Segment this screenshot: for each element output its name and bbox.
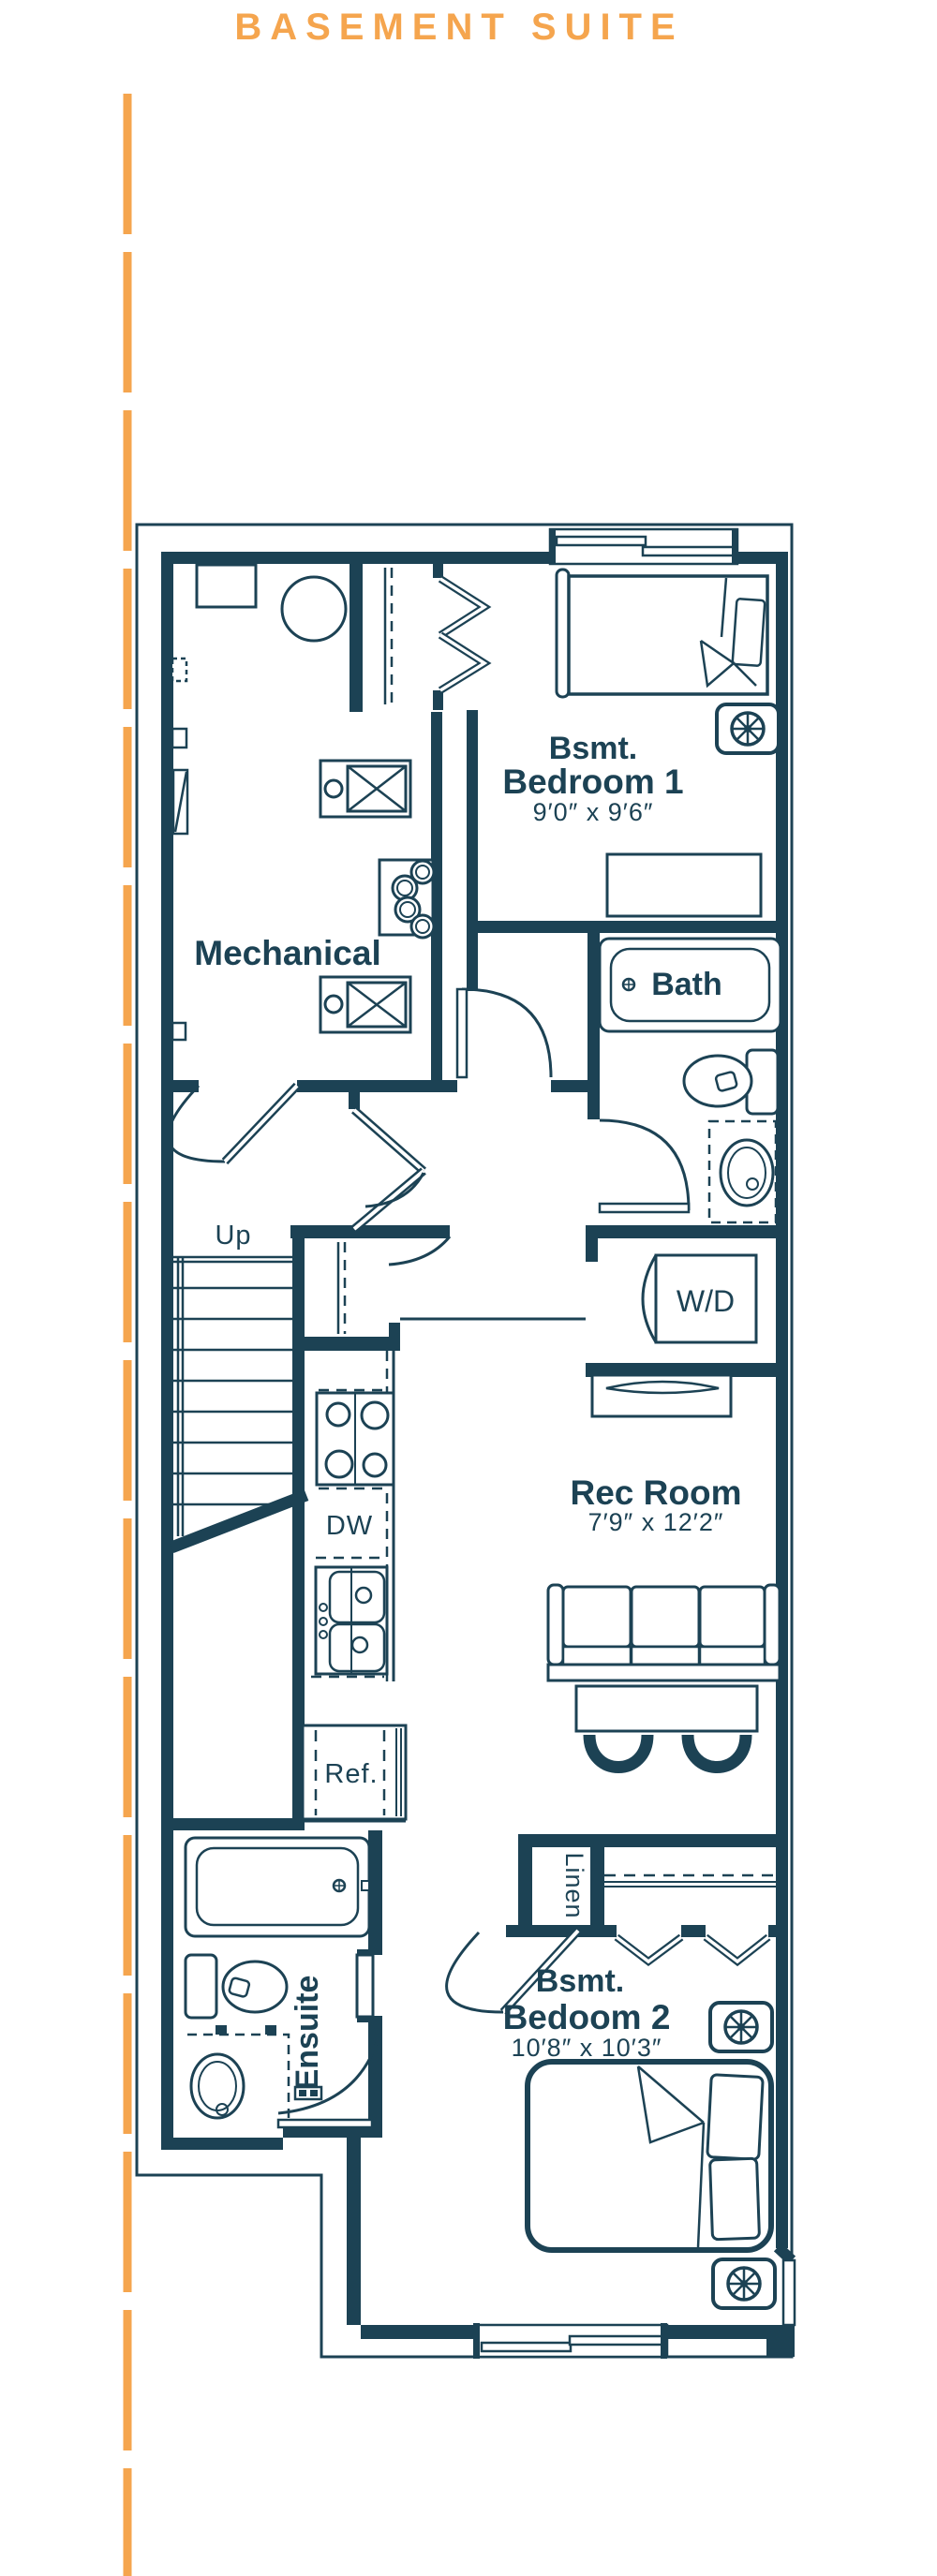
stove-icon — [317, 1393, 394, 1485]
sofa-icon — [548, 1585, 780, 1680]
mechanical-label: Mechanical — [194, 934, 380, 972]
stair-break-line — [171, 1495, 306, 1547]
bed-double-icon — [528, 2062, 771, 2250]
vanity-sink-icon — [709, 1121, 776, 1222]
rec-room-dims: 7′9″ x 12′2″ — [588, 1508, 724, 1536]
bifold-doors-bedroom2-closet — [617, 1937, 768, 1962]
bedroom1-dims: 9′0″ x 9′6″ — [533, 798, 654, 826]
floor-plan-page: BASEMENT SUITE — [0, 0, 937, 2576]
dishwasher-label: DW — [326, 1511, 373, 1541]
window-top — [550, 529, 737, 564]
bedroom1-label-line1: Bsmt. — [549, 731, 637, 766]
wd-label: W/D — [677, 1284, 735, 1318]
furnace-icon — [379, 860, 434, 938]
ensuite-label: Ensuite — [290, 1976, 325, 2091]
half-wall — [278, 2120, 372, 2127]
door-bath — [600, 1120, 689, 1212]
fridge-label: Ref. — [324, 1759, 378, 1789]
door-coat-closet — [389, 1236, 450, 1265]
bedroom1-label-line2: Bedroom 1 — [502, 762, 683, 801]
equipment-box-icon — [197, 565, 256, 607]
tank-icon — [282, 577, 346, 641]
dresser-icon — [607, 854, 761, 916]
hwt2-icon — [320, 977, 410, 1032]
stairs-up-label: Up — [215, 1221, 251, 1251]
fan-icon — [710, 2003, 772, 2051]
window-bottom — [473, 2323, 667, 2359]
vestibule-details — [278, 2087, 372, 2127]
door-rec-room — [354, 1110, 424, 1229]
bifold-doors-bedroom1-closet — [440, 579, 484, 690]
bed-single-icon — [557, 570, 767, 697]
bedroom2-dims: 10′8″ x 10′3″ — [512, 2034, 662, 2062]
rec-room-label: Rec Room — [571, 1473, 742, 1512]
page-title: BASEMENT SUITE — [234, 7, 683, 48]
hwt-icon — [320, 761, 410, 817]
electrical-panel-icon — [172, 659, 187, 1040]
bedroom2-label-line1: Bsmt. — [536, 1963, 624, 1999]
toilet-icon — [684, 1050, 778, 1114]
fan-icon — [717, 704, 779, 753]
fan-icon — [713, 2259, 775, 2308]
bath-label: Bath — [651, 967, 722, 1002]
door-mechanical — [168, 1086, 297, 1162]
table-stools-icon — [576, 1686, 757, 1768]
tv-console-icon — [592, 1369, 731, 1416]
ensuite-bathtub-icon — [186, 1838, 369, 1936]
bedroom2-label-line2: Bedoom 2 — [503, 1998, 671, 2036]
linen-label: Linen — [560, 1852, 588, 1918]
staircase — [171, 1257, 306, 1547]
ensuite-toilet-icon — [186, 1955, 287, 2018]
door-bedroom1 — [457, 989, 551, 1077]
ensuite-vanity-icon — [187, 2025, 289, 2138]
kitchen-sink-icon — [316, 1567, 387, 1674]
floor-plan-canvas: BASEMENT SUITE — [0, 0, 937, 2576]
